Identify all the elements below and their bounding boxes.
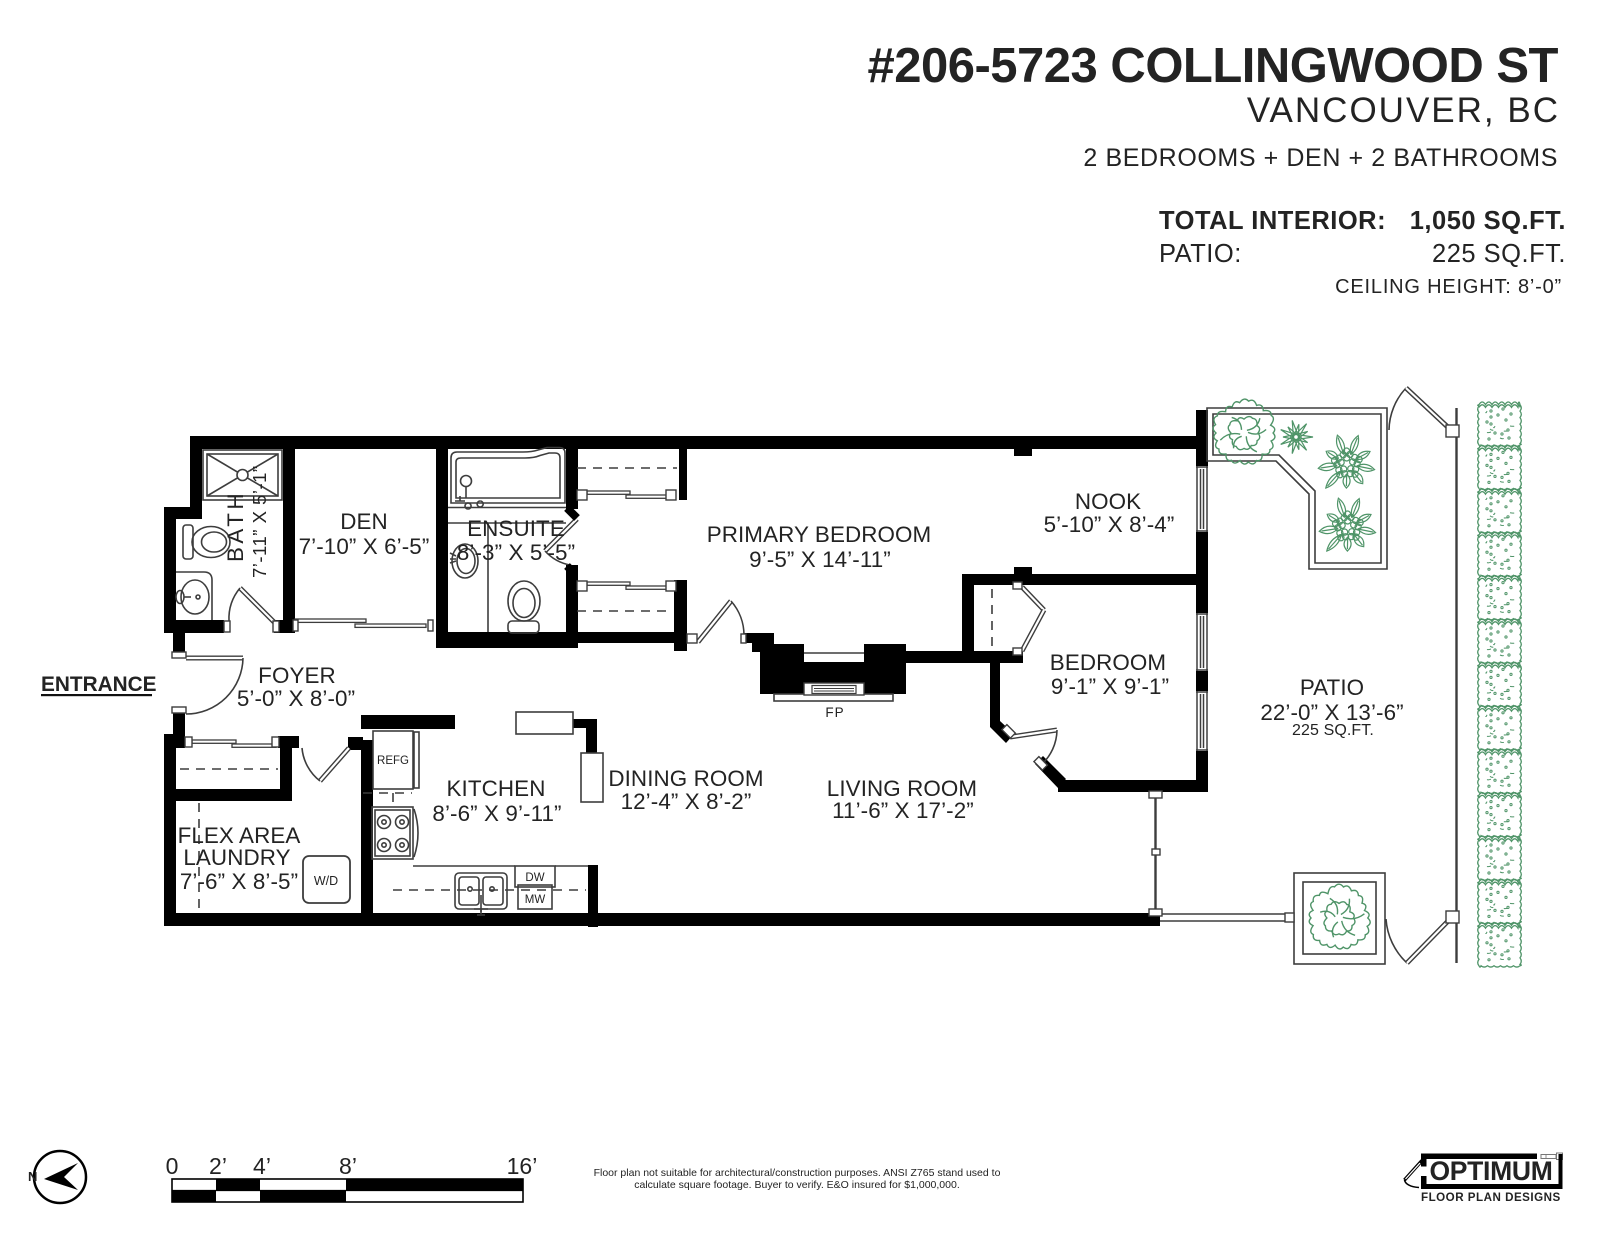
- svg-text:FOYER: FOYER: [258, 663, 336, 688]
- svg-text:PATIO: PATIO: [1300, 675, 1364, 700]
- svg-text:#206-5723 COLLINGWOOD ST: #206-5723 COLLINGWOOD ST: [867, 39, 1558, 93]
- svg-text:16’: 16’: [507, 1153, 538, 1179]
- svg-text:FLOOR PLAN DESIGNS: FLOOR PLAN DESIGNS: [1421, 1191, 1561, 1204]
- svg-text:2’: 2’: [209, 1153, 227, 1179]
- svg-text:CEILING HEIGHT: 8’-0”: CEILING HEIGHT: 8’-0”: [1335, 276, 1562, 298]
- svg-text:225 SQ.FT.: 225 SQ.FT.: [1292, 722, 1374, 739]
- svg-text:KITCHEN: KITCHEN: [447, 776, 546, 801]
- svg-text:REFG: REFG: [377, 755, 409, 767]
- svg-text:OPTIMUM: OPTIMUM: [1429, 1156, 1552, 1186]
- svg-text:calculate square footage. Buye: calculate square footage. Buyer to verif…: [634, 1179, 960, 1191]
- svg-text:8’-3” X 5’-5”: 8’-3” X 5’-5”: [457, 540, 575, 565]
- svg-text:ENSUITE: ENSUITE: [467, 516, 565, 541]
- svg-text:11’-6” X 17’-2”: 11’-6” X 17’-2”: [832, 798, 974, 823]
- svg-text:8’: 8’: [339, 1153, 357, 1179]
- svg-text:9’-1” X 9’-1”: 9’-1” X 9’-1”: [1051, 674, 1169, 699]
- svg-text:7’-11” X 5’-1”: 7’-11” X 5’-1”: [249, 465, 270, 578]
- svg-text:W/D: W/D: [314, 874, 338, 888]
- svg-text:2 BEDROOMS + DEN + 2 BATHROOMS: 2 BEDROOMS + DEN + 2 BATHROOMS: [1083, 144, 1558, 172]
- svg-text:Floor plan not suitable for ar: Floor plan not suitable for architectura…: [594, 1167, 1001, 1179]
- svg-text:VANCOUVER, BC: VANCOUVER, BC: [1247, 91, 1560, 130]
- svg-text:PRIMARY BEDROOM: PRIMARY BEDROOM: [707, 522, 932, 547]
- svg-text:4’: 4’: [253, 1153, 271, 1179]
- svg-text:TOTAL INTERIOR:: TOTAL INTERIOR:: [1159, 207, 1386, 235]
- svg-text:DEN: DEN: [340, 509, 388, 534]
- svg-text:BATH: BATH: [223, 490, 248, 562]
- svg-text:12’-4” X 8’-2”: 12’-4” X 8’-2”: [621, 789, 752, 814]
- svg-text:DINING ROOM: DINING ROOM: [608, 766, 763, 791]
- svg-text:PATIO:: PATIO:: [1159, 240, 1242, 268]
- svg-text:7’-6” X 8’-5”: 7’-6” X 8’-5”: [180, 869, 298, 894]
- svg-text:0: 0: [166, 1153, 179, 1179]
- svg-text:FP: FP: [825, 705, 844, 720]
- svg-text:1,050 SQ.FT.: 1,050 SQ.FT.: [1410, 207, 1566, 235]
- svg-text:7’-10” X 6’-5”: 7’-10” X 6’-5”: [299, 534, 430, 559]
- svg-text:9’-5” X 14’-11”: 9’-5” X 14’-11”: [749, 547, 891, 572]
- svg-text:LAUNDRY: LAUNDRY: [183, 845, 290, 870]
- svg-text:5’-0” X 8’-0”: 5’-0” X 8’-0”: [237, 686, 355, 711]
- svg-text:225 SQ.FT.: 225 SQ.FT.: [1432, 240, 1566, 268]
- svg-text:ENTRANCE: ENTRANCE: [41, 673, 157, 696]
- svg-text:MW: MW: [525, 894, 546, 906]
- svg-text:DW: DW: [525, 872, 544, 884]
- svg-text:8’-6” X 9’-11”: 8’-6” X 9’-11”: [432, 801, 561, 826]
- svg-text:BEDROOM: BEDROOM: [1050, 650, 1166, 675]
- svg-text:5’-10” X 8’-4”: 5’-10” X 8’-4”: [1044, 512, 1175, 537]
- svg-text:N: N: [28, 1169, 37, 1184]
- svg-text:NOOK: NOOK: [1075, 489, 1141, 514]
